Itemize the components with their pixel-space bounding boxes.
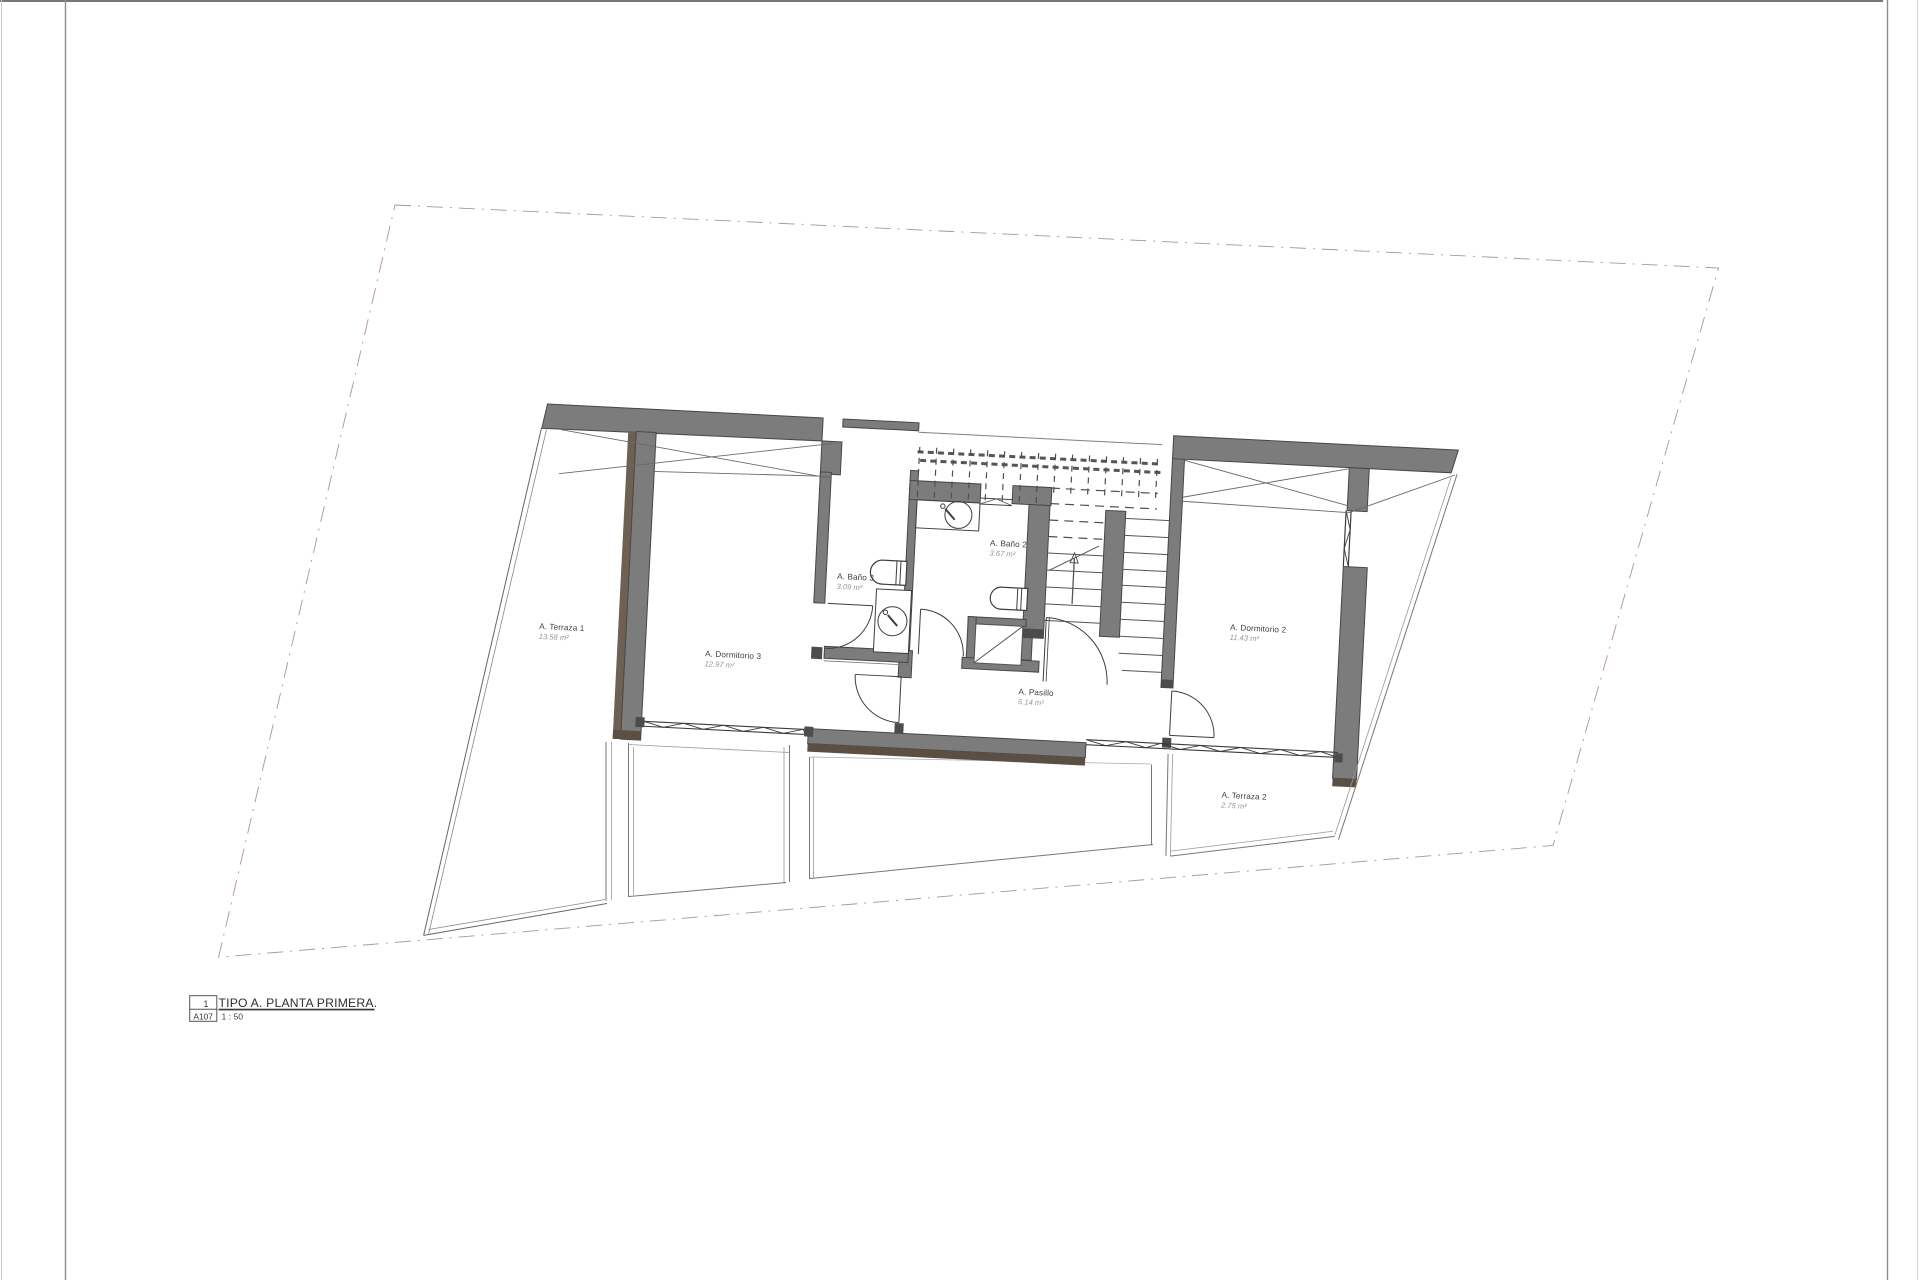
svg-text:TIPO A. PLANTA PRIMERA.: TIPO A. PLANTA PRIMERA.: [219, 996, 378, 1010]
svg-text:A. Baño 2: A. Baño 2: [990, 539, 1028, 550]
svg-text:A. Baño 3: A. Baño 3: [837, 572, 875, 583]
svg-text:1: 1: [204, 999, 209, 1009]
svg-text:13.58 m²: 13.58 m²: [539, 632, 570, 643]
svg-text:3.67 m²: 3.67 m²: [989, 549, 1016, 559]
svg-text:12.97 m²: 12.97 m²: [704, 659, 735, 670]
svg-text:6.14 m²: 6.14 m²: [1018, 697, 1045, 707]
svg-text:A. Pasillo: A. Pasillo: [1018, 687, 1054, 698]
svg-text:A107: A107: [193, 1012, 213, 1022]
svg-text:3.09 m²: 3.09 m²: [836, 582, 863, 592]
svg-text:1 : 50: 1 : 50: [222, 1012, 244, 1022]
svg-text:2.75 m²: 2.75 m²: [1220, 801, 1248, 811]
svg-text:11.43 m²: 11.43 m²: [1229, 633, 1259, 643]
